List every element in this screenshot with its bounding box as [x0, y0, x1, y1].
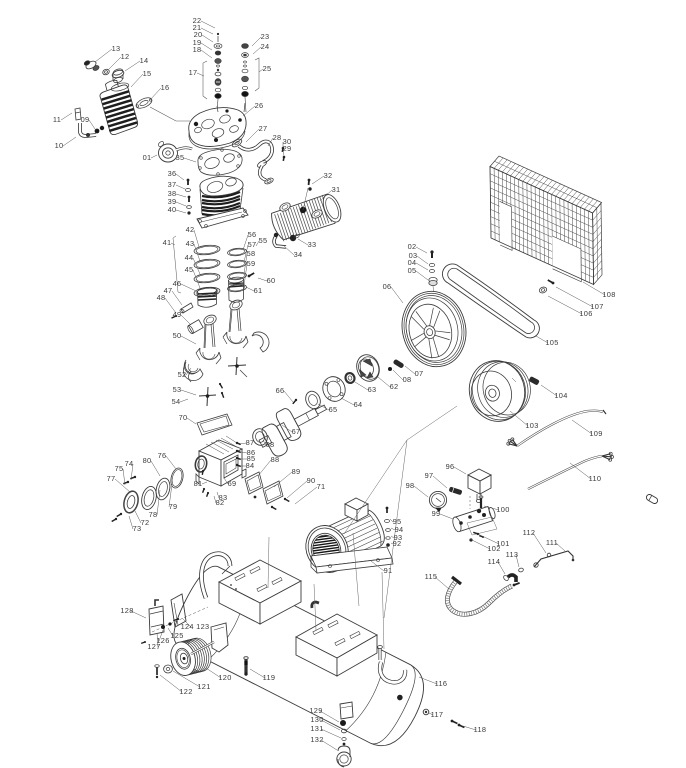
svg-text:99: 99 [432, 509, 441, 518]
svg-text:49: 49 [173, 310, 182, 319]
svg-text:35: 35 [176, 153, 185, 162]
svg-text:55: 55 [259, 236, 268, 245]
svg-text:120: 120 [218, 673, 231, 682]
svg-text:65: 65 [329, 405, 338, 414]
svg-text:130: 130 [310, 715, 323, 724]
svg-text:110: 110 [589, 474, 602, 483]
svg-text:124 123: 124 123 [181, 622, 210, 631]
svg-text:105: 105 [545, 338, 558, 347]
svg-text:113: 113 [506, 550, 519, 559]
svg-text:17: 17 [189, 68, 198, 77]
svg-text:41: 41 [163, 238, 172, 247]
svg-text:59: 59 [247, 259, 256, 268]
svg-text:91: 91 [384, 566, 393, 575]
svg-text:78: 78 [149, 510, 158, 519]
svg-text:24: 24 [261, 42, 270, 51]
svg-text:05: 05 [408, 266, 417, 275]
svg-text:01: 01 [143, 153, 152, 162]
svg-text:98: 98 [406, 481, 415, 490]
svg-text:131: 131 [310, 724, 323, 733]
svg-text:16: 16 [161, 83, 170, 92]
svg-text:69: 69 [228, 479, 237, 488]
svg-text:61: 61 [254, 286, 263, 295]
svg-text:14: 14 [140, 56, 149, 65]
svg-text:107: 107 [590, 302, 603, 311]
svg-text:27: 27 [259, 124, 268, 133]
svg-text:56: 56 [248, 230, 257, 239]
svg-text:102: 102 [487, 544, 500, 553]
svg-text:111: 111 [546, 538, 558, 547]
svg-text:116: 116 [435, 679, 448, 688]
svg-text:122: 122 [179, 687, 192, 696]
svg-text:63: 63 [368, 385, 377, 394]
svg-text:19: 19 [193, 38, 202, 47]
svg-text:43: 43 [186, 239, 195, 248]
svg-text:121: 121 [197, 682, 210, 691]
svg-text:109: 109 [589, 429, 602, 438]
svg-text:128: 128 [120, 606, 133, 615]
svg-text:88: 88 [271, 455, 280, 464]
svg-text:46: 46 [173, 279, 182, 288]
svg-text:11: 11 [53, 115, 61, 124]
svg-text:48: 48 [157, 293, 166, 302]
svg-text:127: 127 [147, 642, 160, 651]
svg-text:54: 54 [172, 397, 181, 406]
svg-text:40: 40 [168, 205, 177, 214]
svg-text:73: 73 [133, 524, 142, 533]
svg-text:70: 70 [179, 413, 188, 422]
svg-text:74: 74 [125, 459, 134, 468]
svg-text:23: 23 [261, 32, 270, 41]
svg-text:50: 50 [173, 331, 182, 340]
svg-text:96: 96 [446, 462, 455, 471]
svg-text:119: 119 [263, 673, 276, 682]
svg-text:22: 22 [193, 16, 202, 25]
svg-text:125: 125 [170, 631, 183, 640]
svg-text:71: 71 [317, 482, 326, 491]
svg-text:64: 64 [354, 400, 363, 409]
svg-text:90: 90 [307, 476, 316, 485]
svg-text:62: 62 [390, 382, 399, 391]
svg-text:52: 52 [178, 370, 187, 379]
svg-text:108: 108 [602, 290, 615, 299]
svg-text:60: 60 [267, 276, 276, 285]
svg-text:79: 79 [169, 502, 178, 511]
svg-text:25: 25 [263, 64, 272, 73]
svg-text:31: 31 [332, 185, 341, 194]
svg-text:67: 67 [292, 427, 301, 436]
svg-text:06: 06 [383, 282, 392, 291]
svg-text:32: 32 [324, 171, 333, 180]
svg-text:81: 81 [194, 479, 203, 488]
svg-text:08: 08 [403, 375, 412, 384]
svg-text:07: 07 [415, 369, 424, 378]
svg-text:34: 34 [294, 250, 303, 259]
svg-text:100: 100 [496, 505, 509, 514]
svg-text:132: 132 [310, 735, 323, 744]
svg-text:114: 114 [488, 557, 501, 566]
svg-text:89: 89 [292, 467, 301, 476]
svg-text:82: 82 [216, 498, 225, 507]
svg-text:15: 15 [143, 69, 152, 78]
svg-text:36: 36 [168, 169, 177, 178]
svg-text:103: 103 [525, 421, 538, 430]
svg-text:77: 77 [107, 474, 116, 483]
svg-text:28: 28 [273, 133, 282, 142]
svg-text:12: 12 [121, 52, 130, 61]
svg-text:13: 13 [112, 44, 121, 53]
svg-text:29: 29 [283, 144, 292, 153]
svg-text:09: 09 [81, 115, 90, 124]
svg-text:75: 75 [115, 464, 124, 473]
svg-text:33: 33 [308, 240, 317, 249]
svg-text:68: 68 [266, 440, 275, 449]
svg-text:117: 117 [431, 710, 444, 719]
svg-text:80: 80 [143, 456, 152, 465]
svg-text:84: 84 [246, 461, 255, 470]
svg-text:10: 10 [55, 141, 64, 150]
svg-text:118: 118 [474, 725, 487, 734]
svg-text:53: 53 [173, 385, 182, 394]
svg-text:76: 76 [158, 451, 167, 460]
svg-text:57: 57 [248, 240, 257, 249]
svg-text:129: 129 [309, 706, 322, 715]
svg-text:45: 45 [185, 265, 194, 274]
svg-text:87: 87 [246, 438, 255, 447]
svg-text:104: 104 [554, 391, 567, 400]
svg-text:58: 58 [247, 249, 256, 258]
svg-text:44: 44 [185, 253, 194, 262]
svg-text:42: 42 [186, 225, 195, 234]
svg-text:02: 02 [408, 242, 417, 251]
svg-text:66: 66 [276, 386, 285, 395]
svg-text:37: 37 [168, 180, 177, 189]
svg-text:92: 92 [393, 539, 402, 548]
svg-text:72: 72 [141, 518, 150, 527]
svg-text:112: 112 [523, 528, 536, 537]
svg-text:26: 26 [255, 101, 264, 110]
svg-text:115: 115 [425, 572, 438, 581]
svg-text:97: 97 [425, 471, 434, 480]
